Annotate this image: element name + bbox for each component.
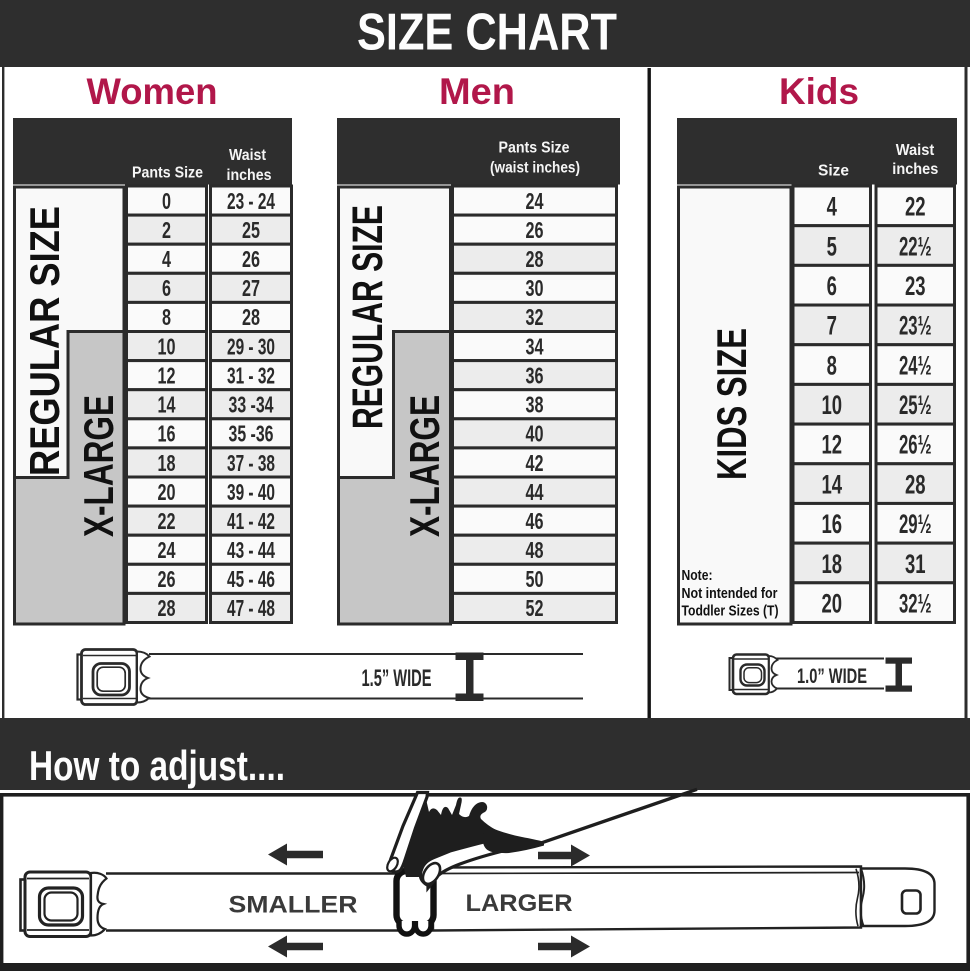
svg-text:32: 32 (526, 304, 544, 330)
svg-text:Men: Men (439, 71, 515, 112)
svg-text:33 -34: 33 -34 (229, 392, 274, 418)
svg-text:14: 14 (158, 392, 176, 418)
svg-text:8: 8 (827, 350, 837, 380)
svg-text:Size: Size (818, 163, 849, 180)
svg-text:31 - 32: 31 - 32 (227, 363, 275, 389)
svg-text:20: 20 (821, 588, 842, 618)
svg-text:4: 4 (827, 192, 837, 222)
svg-text:40: 40 (526, 421, 544, 447)
svg-text:26: 26 (158, 566, 176, 592)
svg-text:16: 16 (821, 509, 842, 539)
svg-text:Kids: Kids (779, 71, 859, 112)
svg-text:inches: inches (892, 161, 938, 178)
svg-text:32½: 32½ (899, 588, 932, 618)
svg-text:48: 48 (526, 537, 544, 563)
svg-text:16: 16 (158, 421, 176, 447)
svg-text:22: 22 (905, 192, 926, 222)
svg-text:24½: 24½ (899, 350, 932, 380)
svg-text:35 -36: 35 -36 (229, 421, 274, 447)
svg-text:52: 52 (526, 595, 544, 621)
svg-text:27: 27 (242, 275, 260, 301)
svg-text:(waist inches): (waist inches) (490, 160, 580, 177)
svg-text:45 - 46: 45 - 46 (227, 566, 275, 592)
svg-text:22½: 22½ (899, 231, 932, 261)
svg-text:37 - 38: 37 - 38 (227, 450, 275, 476)
svg-text:41 - 42: 41 - 42 (227, 508, 275, 534)
svg-text:18: 18 (821, 549, 842, 579)
svg-text:18: 18 (158, 450, 176, 476)
svg-text:23½: 23½ (899, 311, 932, 341)
svg-text:6: 6 (162, 275, 171, 301)
svg-text:38: 38 (526, 392, 544, 418)
svg-text:50: 50 (526, 566, 544, 592)
svg-text:SIZE CHART: SIZE CHART (357, 4, 617, 62)
svg-text:28: 28 (905, 469, 926, 499)
svg-text:SMALLER: SMALLER (229, 892, 358, 919)
svg-text:Note:: Note: (682, 567, 713, 584)
svg-text:1.5” WIDE: 1.5” WIDE (362, 665, 432, 692)
svg-text:25: 25 (242, 217, 260, 243)
svg-text:7: 7 (827, 311, 837, 341)
svg-text:0: 0 (162, 188, 171, 214)
svg-text:X-LARGE: X-LARGE (401, 395, 448, 537)
svg-text:REGULAR SIZE: REGULAR SIZE (344, 205, 392, 429)
svg-text:8: 8 (162, 304, 171, 330)
svg-text:44: 44 (526, 479, 544, 505)
svg-text:2: 2 (162, 217, 171, 243)
svg-text:How to adjust....: How to adjust.... (29, 742, 285, 789)
svg-text:24: 24 (158, 537, 176, 563)
svg-text:25½: 25½ (899, 390, 932, 420)
svg-text:31: 31 (905, 549, 926, 579)
svg-text:26½: 26½ (899, 430, 932, 460)
svg-text:47 - 48: 47 - 48 (227, 595, 275, 621)
svg-text:14: 14 (821, 469, 842, 499)
svg-text:23: 23 (905, 271, 926, 301)
svg-text:42: 42 (526, 450, 544, 476)
svg-text:KIDS SIZE: KIDS SIZE (708, 328, 755, 480)
svg-text:10: 10 (821, 390, 842, 420)
svg-text:LARGER: LARGER (466, 890, 573, 917)
svg-text:28: 28 (526, 246, 544, 272)
svg-text:43 - 44: 43 - 44 (227, 537, 275, 563)
svg-text:26: 26 (242, 246, 260, 272)
svg-text:Not intended for: Not intended for (682, 585, 778, 602)
svg-text:30: 30 (526, 275, 544, 301)
svg-text:34: 34 (526, 333, 544, 359)
svg-text:Waist: Waist (896, 142, 935, 159)
svg-text:X-LARGE: X-LARGE (75, 395, 122, 537)
svg-text:24: 24 (526, 188, 544, 214)
svg-text:23 - 24: 23 - 24 (227, 188, 275, 214)
svg-text:6: 6 (827, 271, 837, 301)
svg-text:1.0” WIDE: 1.0” WIDE (797, 665, 867, 688)
svg-text:Toddler Sizes (T): Toddler Sizes (T) (682, 603, 779, 620)
svg-text:4: 4 (162, 246, 171, 272)
svg-text:Women: Women (87, 71, 218, 112)
svg-text:10: 10 (158, 333, 176, 359)
svg-text:28: 28 (242, 304, 260, 330)
svg-text:20: 20 (158, 479, 176, 505)
svg-text:46: 46 (526, 508, 544, 534)
svg-text:Waist: Waist (229, 147, 266, 164)
svg-text:29 - 30: 29 - 30 (227, 333, 275, 359)
svg-text:5: 5 (827, 231, 837, 261)
svg-text:29½: 29½ (899, 509, 932, 539)
svg-text:inches: inches (227, 167, 272, 184)
svg-text:28: 28 (158, 595, 176, 621)
svg-text:Pants Size: Pants Size (499, 140, 570, 157)
svg-text:26: 26 (526, 217, 544, 243)
svg-text:Pants Size: Pants Size (132, 165, 203, 182)
svg-text:12: 12 (821, 430, 842, 460)
svg-text:39 - 40: 39 - 40 (227, 479, 275, 505)
svg-text:REGULAR SIZE: REGULAR SIZE (21, 206, 68, 476)
svg-text:22: 22 (158, 508, 176, 534)
svg-text:12: 12 (158, 363, 176, 389)
svg-text:36: 36 (526, 363, 544, 389)
